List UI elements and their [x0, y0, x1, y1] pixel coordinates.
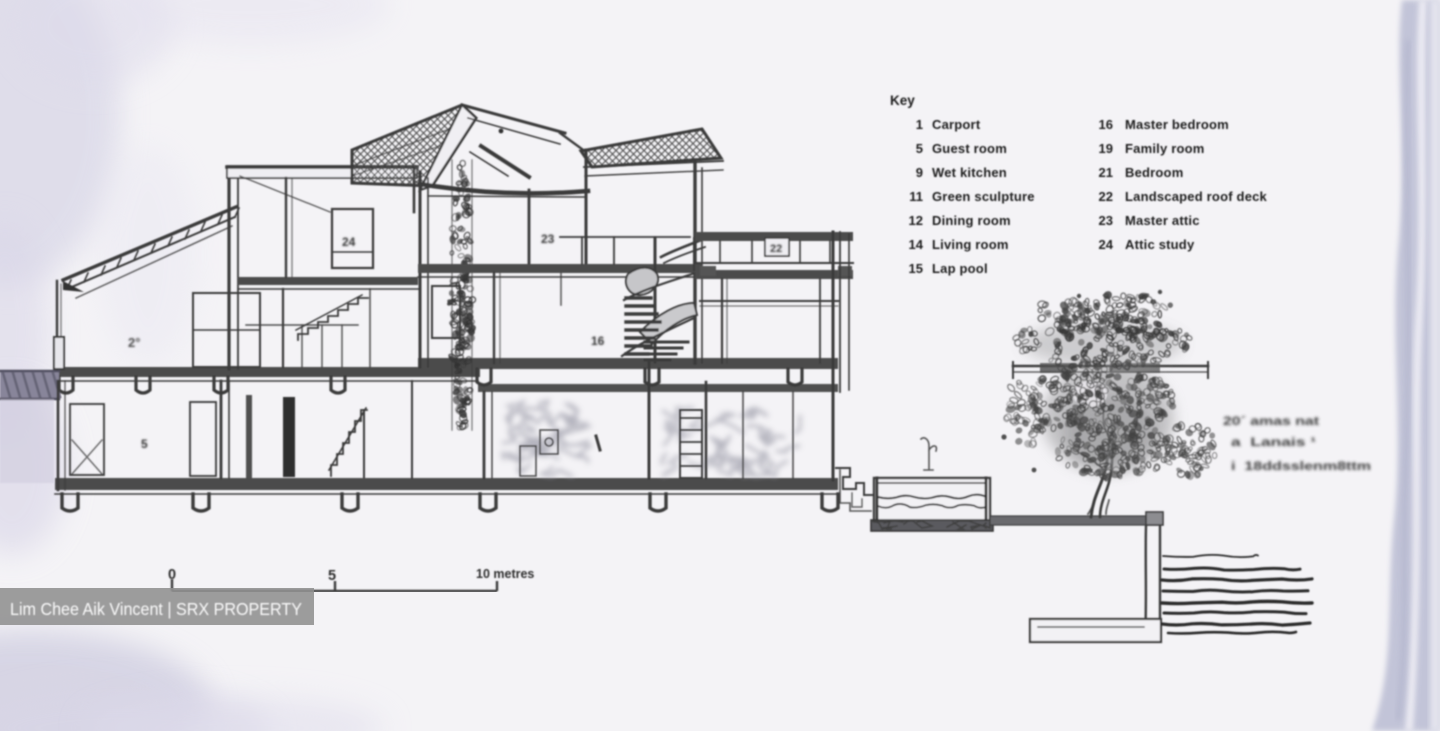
svg-text:0: 0 — [168, 567, 176, 583]
svg-text:5: 5 — [328, 568, 336, 584]
svg-text:24: 24 — [342, 235, 356, 249]
svg-text:Lim Chee Aik Vincent | SRX PRO: Lim Chee Aik Vincent | SRX PROPERTY — [10, 599, 302, 619]
svg-text:Bedroom: Bedroom — [1125, 165, 1183, 180]
svg-text:Master attic: Master attic — [1125, 213, 1200, 228]
svg-text:19: 19 — [1099, 141, 1113, 156]
svg-text:Living room: Living room — [932, 237, 1009, 252]
svg-text:Guest room: Guest room — [932, 141, 1007, 156]
svg-text:24: 24 — [1099, 237, 1114, 252]
svg-text:23: 23 — [1099, 213, 1113, 228]
svg-text:a Lanais ¹: a Lanais ¹ — [1231, 435, 1316, 449]
svg-text:23: 23 — [541, 232, 555, 246]
svg-text:Dining room: Dining room — [932, 213, 1011, 228]
svg-text:16: 16 — [591, 334, 605, 348]
svg-text:20´ amas nat: 20´ amas nat — [1223, 414, 1319, 428]
svg-text:16: 16 — [1099, 117, 1113, 132]
svg-text:Carport: Carport — [932, 117, 981, 132]
svg-text:1: 1 — [916, 117, 923, 132]
svg-text:5: 5 — [916, 141, 923, 156]
svg-text:Lap pool: Lap pool — [932, 261, 988, 276]
svg-text:21: 21 — [1099, 165, 1113, 180]
svg-text:Key: Key — [890, 93, 915, 108]
svg-text:9: 9 — [916, 165, 923, 180]
svg-text:Master bedroom: Master bedroom — [1125, 117, 1229, 132]
svg-text:10 metres: 10 metres — [476, 567, 534, 581]
svg-text:11: 11 — [909, 189, 923, 204]
svg-text:14: 14 — [909, 237, 924, 252]
svg-text:Green sculpture: Green sculpture — [932, 189, 1035, 204]
svg-text:Landscaped roof deck: Landscaped roof deck — [1125, 189, 1268, 204]
svg-text:15: 15 — [909, 261, 923, 276]
svg-text:22: 22 — [770, 243, 782, 255]
svg-text:Wet kitchen: Wet kitchen — [932, 165, 1007, 180]
svg-text:5: 5 — [141, 437, 148, 451]
svg-text:22: 22 — [1099, 189, 1113, 204]
svg-text:Attic study: Attic study — [1125, 237, 1195, 252]
svg-text:Family room: Family room — [1125, 141, 1205, 156]
svg-text:i 18ddsslenm8ttm: i 18ddsslenm8ttm — [1231, 459, 1371, 473]
svg-text:2°: 2° — [128, 335, 140, 350]
svg-text:12: 12 — [909, 213, 923, 228]
